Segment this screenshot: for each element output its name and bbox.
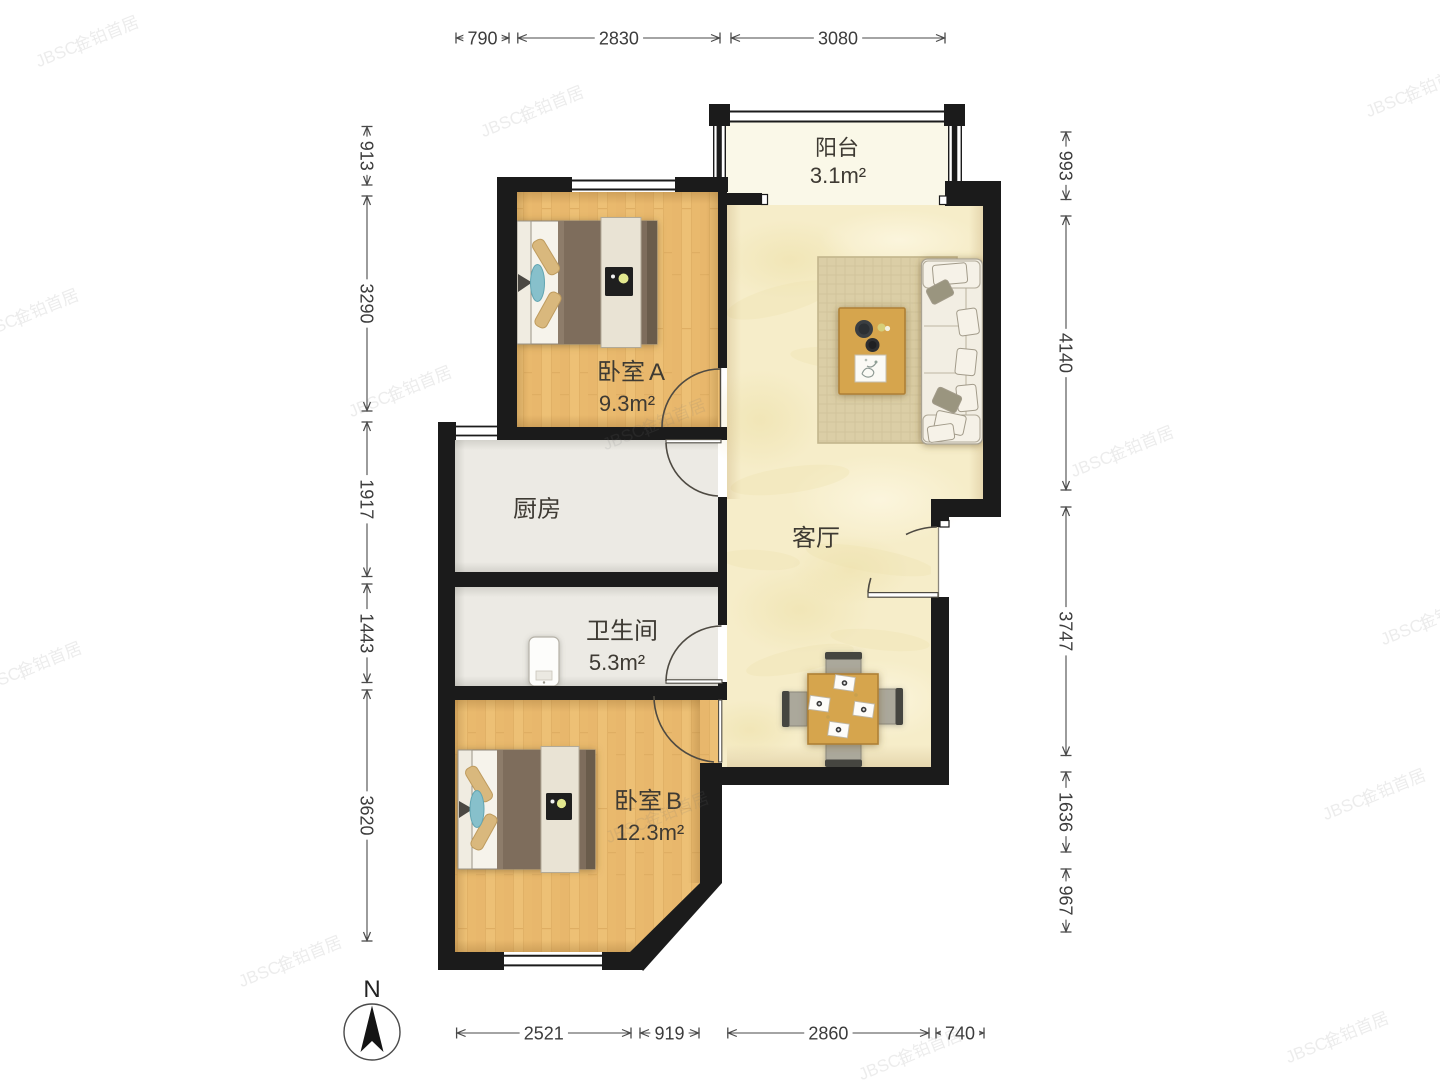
svg-text:JBSC|: JBSC|: [478, 106, 530, 142]
svg-text:JBSC|: JBSC|: [236, 956, 288, 992]
svg-text:5.3m²: 5.3m²: [589, 650, 645, 675]
svg-text:4140: 4140: [1056, 333, 1076, 373]
svg-text:1443: 1443: [357, 613, 377, 653]
svg-text:1917: 1917: [357, 479, 377, 519]
svg-text:3.1m²: 3.1m²: [810, 163, 866, 188]
svg-text:A: A: [649, 359, 665, 386]
svg-text:JBSC|: JBSC|: [1068, 446, 1120, 482]
svg-text:913: 913: [357, 141, 377, 171]
svg-text:JBSC|: JBSC|: [346, 386, 398, 422]
svg-text:2860: 2860: [808, 1023, 848, 1043]
svg-text:3080: 3080: [818, 28, 858, 48]
svg-text:N: N: [363, 976, 380, 1003]
svg-text:3620: 3620: [357, 795, 377, 835]
svg-text:2830: 2830: [599, 28, 639, 48]
svg-text:JBSC|: JBSC|: [33, 36, 85, 72]
svg-text:3290: 3290: [357, 283, 377, 323]
svg-text:JBSC|: JBSC|: [1378, 614, 1430, 650]
svg-text:JBSC|: JBSC|: [856, 1049, 908, 1080]
svg-text:790: 790: [467, 28, 497, 48]
svg-text:3747: 3747: [1056, 611, 1076, 651]
svg-text:1636: 1636: [1056, 792, 1076, 832]
svg-text:2521: 2521: [524, 1023, 564, 1043]
svg-text:JBSC|: JBSC|: [1320, 789, 1372, 825]
svg-text:JBSC|: JBSC|: [1283, 1032, 1335, 1068]
svg-text:967: 967: [1056, 885, 1076, 915]
svg-text:919: 919: [654, 1023, 684, 1043]
svg-text:9.3m²: 9.3m²: [599, 391, 655, 416]
svg-text:JBSC|: JBSC|: [1363, 86, 1415, 122]
svg-text:993: 993: [1056, 151, 1076, 181]
